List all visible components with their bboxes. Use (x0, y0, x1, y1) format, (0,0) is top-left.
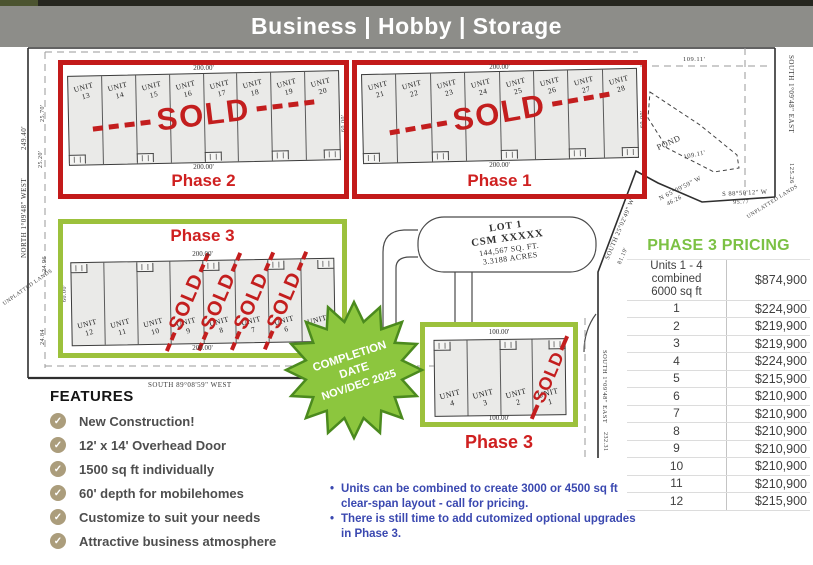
phase3-small-box: 100.00' UNIT4UNIT3UNIT2UNIT1SOLD 100.00' (420, 322, 578, 427)
phase3-small-building: UNIT4UNIT3UNIT2UNIT1SOLD (433, 338, 566, 417)
survey-label: 95.77 (733, 199, 749, 206)
phase1-box: 200.00' UNIT21UNIT22UNIT23UNIT24UNIT25UN… (352, 60, 647, 199)
feature-item: ✓Customize to suit your needs (50, 509, 325, 525)
phase1-dim-top: 200.00' (357, 63, 642, 71)
pricing-label-line2: 6000 sq ft (627, 286, 726, 299)
garage-door-icon (136, 153, 153, 162)
door-tick (322, 261, 323, 267)
unit-label: UNIT15 (134, 78, 170, 103)
pricing-row-price: $210,900 (726, 388, 810, 405)
pricing-title: PHASE 3 PRICING (627, 237, 810, 255)
survey-label: 232.31 (602, 432, 608, 452)
phase1-label: Phase 1 (357, 171, 642, 191)
survey-label: SOUTH 1°09'48" EAST (601, 350, 608, 423)
check-icon: ✓ (50, 461, 66, 477)
door-tick (209, 154, 210, 160)
pricing-row: 8$210,900 (627, 423, 810, 441)
pricing-row-label: 11 (627, 477, 726, 491)
pricing-row-price: $215,900 (726, 493, 810, 510)
garage-door-icon (432, 151, 449, 160)
feature-text: 60' depth for mobilehomes (79, 486, 244, 501)
pricing-row: 2$219,900 (627, 318, 810, 336)
door-tick (148, 155, 149, 161)
pricing-row-price: $219,900 (726, 336, 810, 353)
sold-dash (559, 335, 569, 350)
survey-label: 125.26 (788, 163, 795, 184)
pricing-row-label: 10 (627, 460, 726, 474)
feature-item: ✓Attractive business atmosphere (50, 533, 325, 549)
survey-label: 25.70' (40, 104, 46, 122)
feature-text: 12' x 14' Overhead Door (79, 438, 226, 453)
phase2-dim-bottom: 200.00' (63, 163, 344, 171)
door-tick (277, 152, 278, 158)
door-tick (633, 149, 634, 155)
pricing-row: 7$210,900 (627, 406, 810, 424)
pricing-row-label: 7 (627, 407, 726, 421)
phase2-dim-top: 200.00' (63, 64, 344, 72)
unit-cell: UNIT4 (434, 340, 468, 415)
pricing-panel: PHASE 3 PRICING Units 1 - 4 combined6000… (627, 237, 810, 511)
unit-label: UNIT12 (71, 316, 106, 341)
door-tick (283, 152, 284, 158)
pricing-row: 10$210,900 (627, 458, 810, 476)
door-tick (74, 157, 75, 163)
unit-label: UNIT22 (395, 77, 432, 102)
check-icon: ✓ (50, 437, 66, 453)
garage-door-icon (317, 260, 334, 269)
feature-text: Customize to suit your needs (79, 510, 260, 525)
flyer-page: Business | Hobby | Storage 249 (0, 0, 813, 565)
door-tick (439, 343, 440, 349)
bullet-icon: • (330, 512, 334, 542)
pricing-row-price: $215,900 (726, 371, 810, 388)
door-tick (147, 264, 148, 270)
pricing-row-label: 6 (627, 390, 726, 404)
feature-text: 1500 sq ft individually (79, 462, 214, 477)
pricing-row-label: 1 (627, 302, 726, 316)
notes-list: •Units can be combined to create 3000 or… (330, 482, 638, 542)
pricing-row-price: $210,900 (726, 406, 810, 423)
pricing-table: Units 1 - 4 combined6000 sq ft$874,9001$… (627, 259, 810, 511)
unit-label: UNIT14 (101, 79, 137, 104)
garage-door-icon (433, 342, 450, 351)
feature-item: ✓1500 sq ft individually (50, 461, 325, 477)
door-tick (504, 342, 505, 348)
check-icon: ✓ (50, 509, 66, 525)
unit-label: UNIT11 (104, 315, 139, 340)
survey-label: 109.11' (683, 56, 705, 63)
door-tick (75, 265, 76, 271)
phase3-main-dim-top: 200.00' (63, 250, 342, 258)
pricing-row: 3$219,900 (627, 336, 810, 354)
garage-door-icon (136, 263, 153, 272)
unit-label: UNIT13 (67, 79, 103, 104)
door-tick (445, 343, 446, 349)
pricing-row-label: Units 1 - 4 combined6000 sq ft (627, 260, 726, 300)
bullet-icon: • (330, 482, 334, 512)
pricing-row-label: 3 (627, 337, 726, 351)
unit-label: UNIT21 (361, 78, 398, 103)
features-title: FEATURES (50, 388, 325, 405)
sold-dash-right (256, 99, 314, 111)
door-tick (374, 155, 375, 161)
unit-label: UNIT3 (466, 385, 501, 411)
pricing-row-price: $210,900 (726, 458, 810, 475)
garage-door-icon (204, 152, 221, 161)
phase3-main-label: Phase 3 (63, 226, 342, 246)
door-tick (328, 261, 329, 267)
unit-cell: UNIT11 (104, 262, 138, 345)
door-tick (335, 151, 336, 157)
unit-cell: UNIT12 (71, 263, 105, 346)
door-tick (627, 149, 628, 155)
pricing-row-label: 8 (627, 425, 726, 439)
survey-label: 249.40' (20, 126, 28, 150)
pricing-row-price: $219,900 (726, 318, 810, 335)
phase2-label: Phase 2 (63, 171, 344, 191)
door-tick (443, 153, 444, 159)
door-tick (437, 153, 438, 159)
pricing-row: 5$215,900 (627, 371, 810, 389)
pricing-row-label: 9 (627, 442, 726, 456)
features-list: ✓New Construction!✓12' x 14' Overhead Do… (50, 413, 325, 549)
garage-door-icon (324, 149, 341, 158)
pricing-row: 6$210,900 (627, 388, 810, 406)
sold-dash-left (93, 119, 151, 131)
pricing-row-price: $874,900 (726, 260, 810, 300)
door-tick (580, 150, 581, 156)
garage-door-icon (622, 147, 639, 156)
survey-label: 25.20' (38, 150, 44, 168)
check-icon: ✓ (50, 533, 66, 549)
sold-dash-right (551, 91, 609, 106)
door-tick (574, 150, 575, 156)
pricing-row-price: $224,900 (726, 353, 810, 370)
unit-label: UNIT4 (433, 386, 468, 412)
pricing-label-line1: Units 1 - 4 combined (627, 260, 726, 286)
door-tick (215, 154, 216, 160)
door-tick (80, 157, 81, 163)
garage-door-icon (272, 150, 289, 159)
check-icon: ✓ (50, 485, 66, 501)
note-item: •There is still time to add cutomized op… (330, 512, 638, 542)
pricing-row-price: $224,900 (726, 301, 810, 318)
pricing-row: 12$215,900 (627, 493, 810, 511)
feature-item: ✓New Construction! (50, 413, 325, 429)
pricing-row-price: $210,900 (726, 423, 810, 440)
unit-label: UNIT23 (429, 76, 466, 101)
pricing-row: Units 1 - 4 combined6000 sq ft$874,900 (627, 260, 810, 301)
pricing-row-price: $210,900 (726, 476, 810, 493)
door-tick (142, 155, 143, 161)
pricing-row: 1$224,900 (627, 301, 810, 319)
unit-cell: UNIT1SOLD (533, 339, 566, 414)
phase1-dim-bottom: 200.00' (357, 161, 642, 169)
note-text: Units can be combined to create 3000 or … (341, 482, 638, 512)
pond-outline (648, 92, 739, 172)
garage-door-icon (569, 148, 586, 157)
unit-cell: UNIT3 (467, 340, 501, 415)
note-item: •Units can be combined to create 3000 or… (330, 482, 638, 512)
phase2-box: 200.00' UNIT13UNIT14UNIT15UNIT16UNIT17UN… (58, 60, 349, 199)
door-tick (505, 152, 506, 158)
phase3-small-label: Phase 3 (420, 432, 578, 453)
door-tick (329, 151, 330, 157)
phase3-small-dim-top: 100.00' (425, 328, 573, 336)
pricing-row: 4$224,900 (627, 353, 810, 371)
feature-text: Attractive business atmosphere (79, 534, 276, 549)
pricing-row: 9$210,900 (627, 441, 810, 459)
feature-item: ✓60' depth for mobilehomes (50, 485, 325, 501)
survey-label: SOUTH 1°09'48" EAST (787, 55, 795, 133)
garage-door-icon (500, 150, 517, 159)
feature-item: ✓12' x 14' Overhead Door (50, 437, 325, 453)
garage-door-icon (499, 341, 516, 350)
pricing-row-price: $210,900 (726, 441, 810, 458)
garage-door-icon (70, 264, 87, 273)
sold-dash-left (390, 120, 448, 135)
door-tick (510, 342, 511, 348)
pricing-row-label: 5 (627, 372, 726, 386)
survey-label: NORTH 1°09'48" WEST (20, 178, 28, 258)
door-tick (81, 265, 82, 271)
feature-text: New Construction! (79, 414, 195, 429)
survey-label: 24.84 (40, 329, 46, 345)
features-panel: FEATURES ✓New Construction!✓12' x 14' Ov… (50, 388, 325, 557)
phase3-small-dim-bottom: 100.00' (425, 414, 573, 422)
note-text: There is still time to add cutomized opt… (341, 512, 638, 542)
pricing-row-label: 2 (627, 320, 726, 334)
door-tick (511, 152, 512, 158)
pricing-row-label: 12 (627, 495, 726, 509)
check-icon: ✓ (50, 413, 66, 429)
pricing-row: 11$210,900 (627, 476, 810, 494)
door-tick (141, 264, 142, 270)
pricing-row-label: 4 (627, 355, 726, 369)
